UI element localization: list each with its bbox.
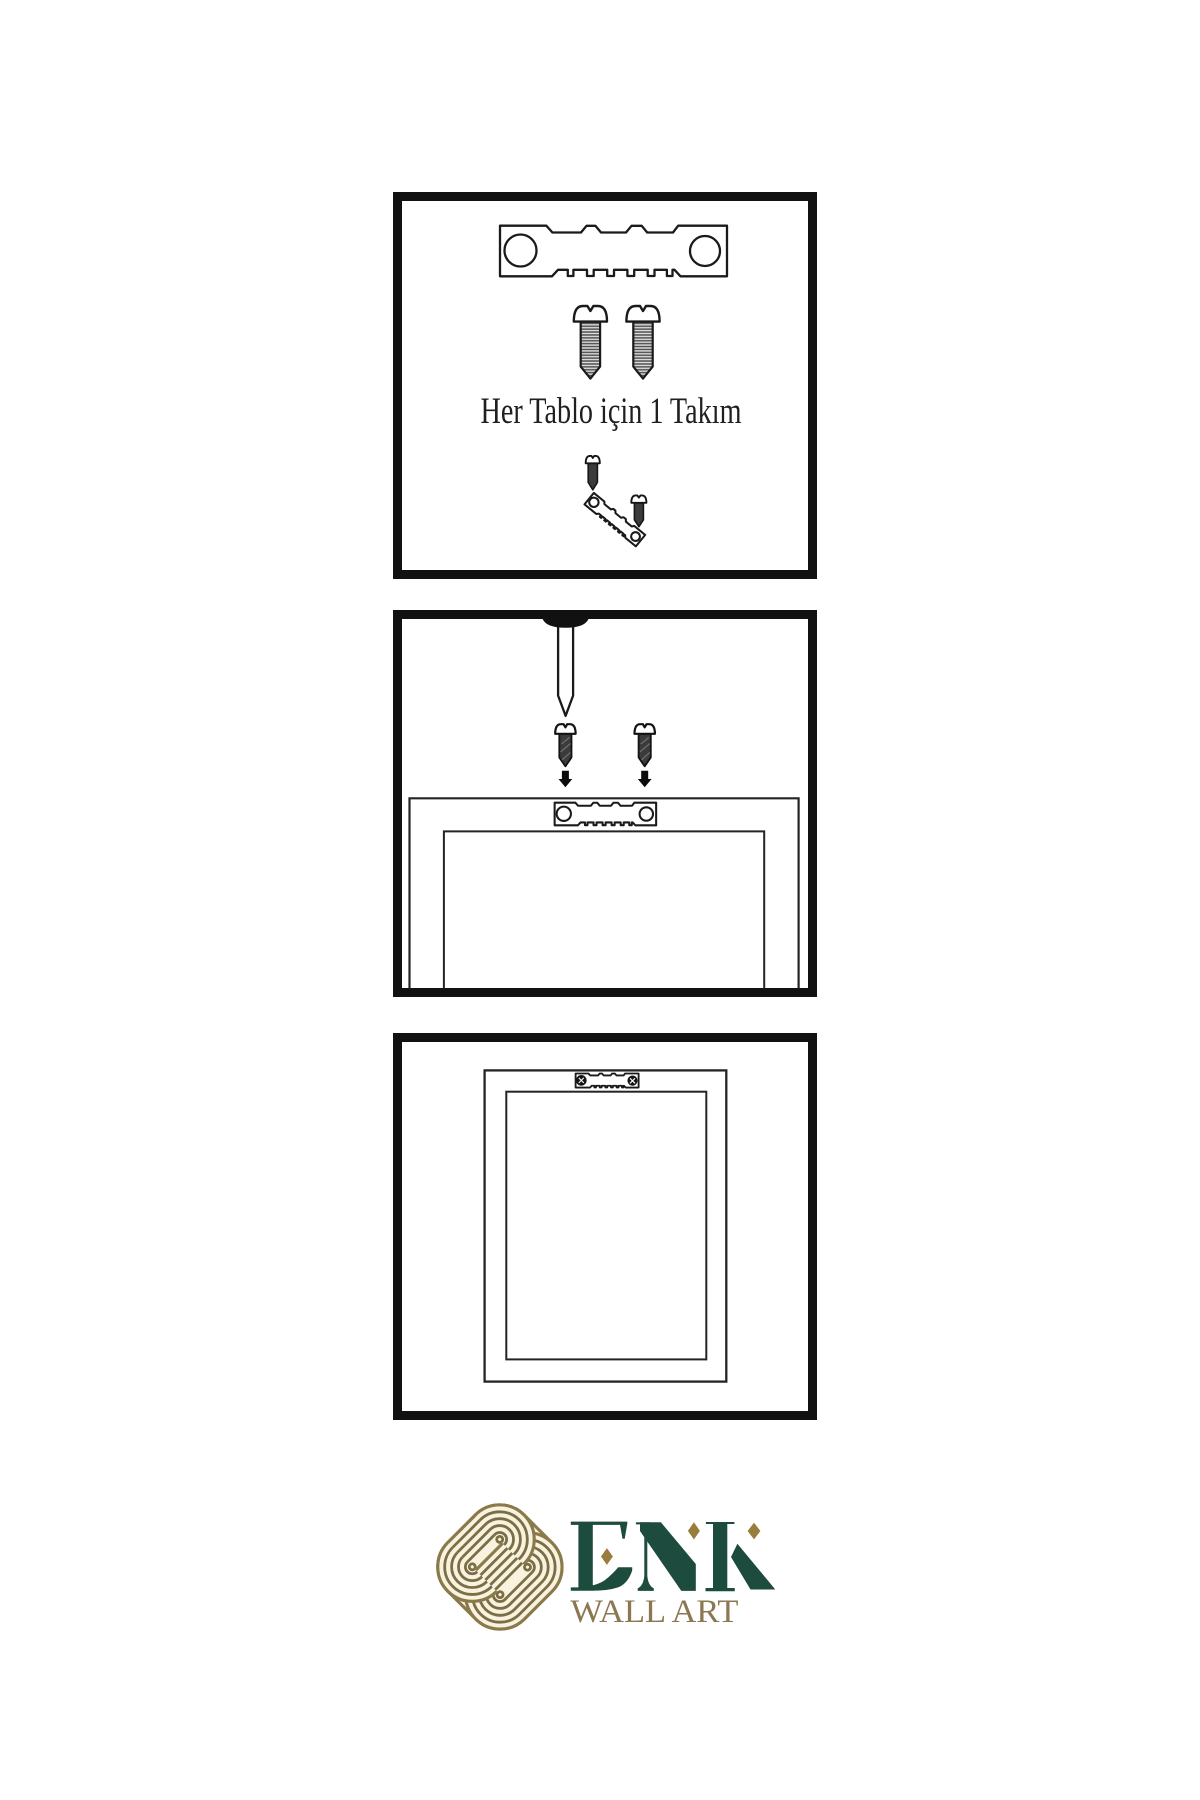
svg-text:WALL ART: WALL ART xyxy=(570,1594,738,1630)
svg-text:Her Tablo için 1 Takım: Her Tablo için 1 Takım xyxy=(481,390,742,431)
